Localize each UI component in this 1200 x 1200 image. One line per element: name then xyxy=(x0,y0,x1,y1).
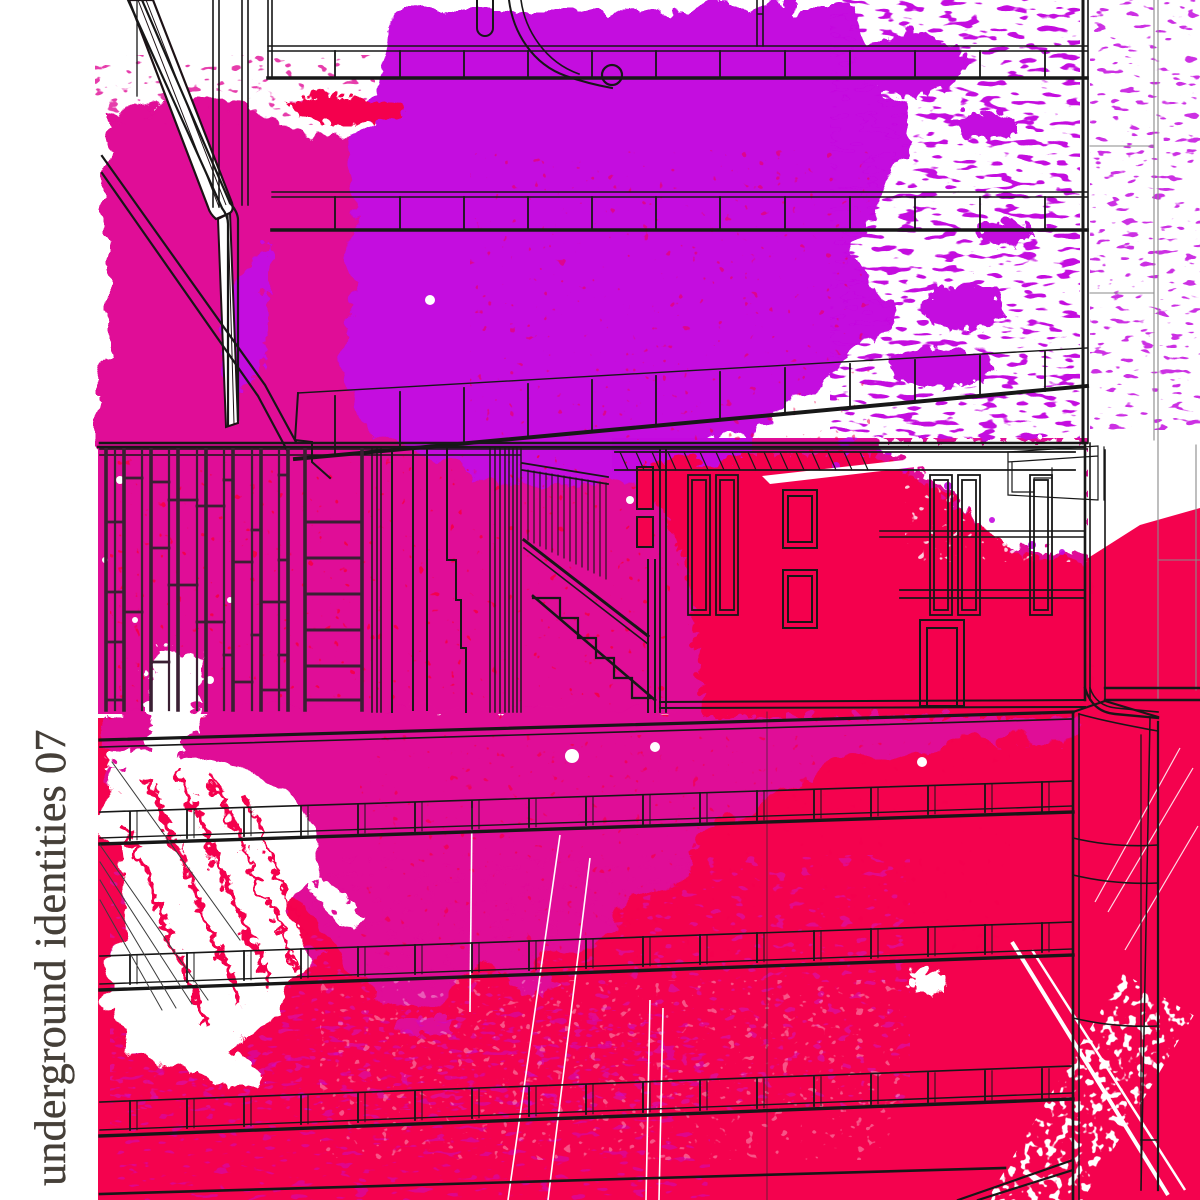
svg-text:underground identities 07: underground identities 07 xyxy=(25,730,75,1186)
